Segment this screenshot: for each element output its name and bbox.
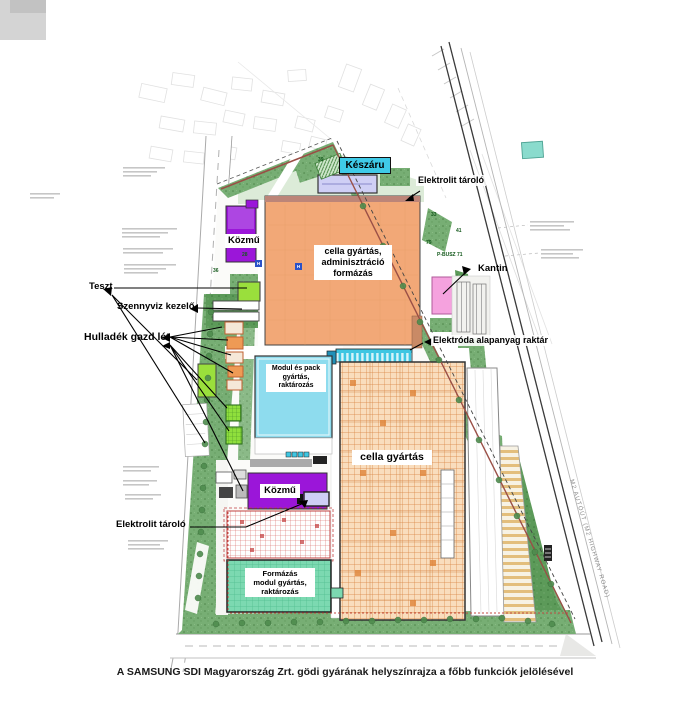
bottom-road [170,634,596,658]
teal-structure [521,141,543,158]
label-keszaru: Készáru [339,157,391,174]
plot-number: 39 [318,157,324,163]
barcode-structure [544,545,552,561]
plot-number: 33 [431,212,437,218]
label-elektrolit-bottom: Elektrolit tároló [116,519,186,531]
scan-artifact [0,0,46,40]
label-szennyviz: Szennyviz kezelő [117,301,195,313]
label-modul-pack: Modul és pack gyártás, raktározás [266,364,326,392]
label-kozmu-top: Közmű [225,234,262,248]
plot-number: 41 [456,228,462,234]
label-elektroda: Elektróda alapanyag raktár [431,335,550,346]
plot-number: 36 [213,268,219,274]
site-plan-map: M2 AUTÓÚT (M2 HIGHWAY ROAD) [0,0,690,701]
building-cella [340,362,465,620]
parking-structures [452,276,490,338]
plot-number: P-BUSZ 71 [437,252,463,258]
label-formazas: Formázás modul gyártás, raktározás [245,568,315,597]
label-elektrolit-top: Elektrolit tároló [416,175,486,186]
label-hulladek: Hulladék gazd lét [84,331,170,344]
hydrant-chip: H [255,260,262,267]
hydrant-chip: H [295,263,302,270]
label-kantin: Kantin [478,263,508,275]
red-grid-yard [224,508,333,561]
m2-road-label: M2 AUTÓÚT (M2 HIGHWAY ROAD) [568,479,611,599]
caption: A SAMSUNG SDI Magyarország Zrt. gödi gyá… [0,666,690,678]
label-teszt: Teszt [89,281,113,293]
plot-number: 79 [426,240,432,246]
label-cella-admin: cella gyártás, adminisztráció formázás [314,245,392,280]
plot-number: 28 [242,252,248,258]
building-elektrolit-store [304,492,329,506]
label-kozmu-bottom: Közmű [260,484,300,498]
label-cella: cella gyártás [352,450,432,465]
building-white-strip [467,368,505,616]
site-plan-page: M2 AUTÓÚT (M2 HIGHWAY ROAD) [0,0,690,701]
